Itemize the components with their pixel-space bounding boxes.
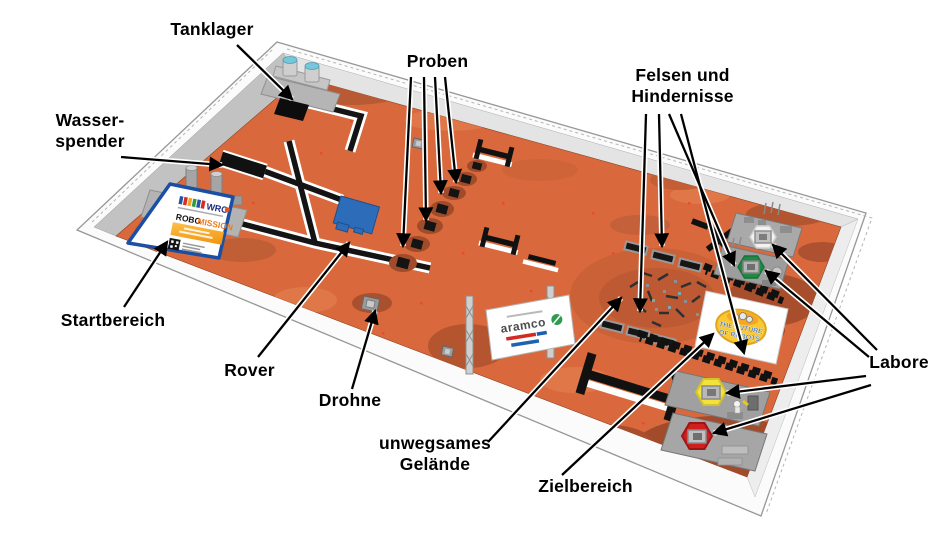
sample bbox=[417, 218, 443, 234]
sample bbox=[404, 236, 430, 252]
drone-marker bbox=[361, 296, 379, 312]
sample bbox=[467, 160, 487, 172]
sample bbox=[442, 186, 466, 200]
sample bbox=[430, 201, 454, 217]
label-wasserspender: Wasser- spender bbox=[30, 110, 150, 152]
label-unwegsames-gelaende: unwegsames Gelände bbox=[355, 433, 515, 475]
label-proben: Proben bbox=[390, 51, 485, 72]
label-labore: Labore bbox=[856, 352, 942, 373]
sample bbox=[389, 254, 417, 272]
wro-mars-field-diagram: aramco THE FUTURE OF ROBOTS bbox=[0, 0, 942, 543]
label-startbereich: Startbereich bbox=[38, 310, 188, 331]
label-felsen-hindernisse: Felsen und Hindernisse bbox=[605, 65, 760, 107]
label-tanklager: Tanklager bbox=[152, 19, 272, 40]
label-zielbereich: Zielbereich bbox=[518, 476, 653, 497]
small-marker bbox=[441, 346, 454, 357]
label-drohne: Drohne bbox=[305, 390, 395, 411]
label-rover: Rover bbox=[212, 360, 287, 381]
qr-code bbox=[168, 238, 181, 251]
